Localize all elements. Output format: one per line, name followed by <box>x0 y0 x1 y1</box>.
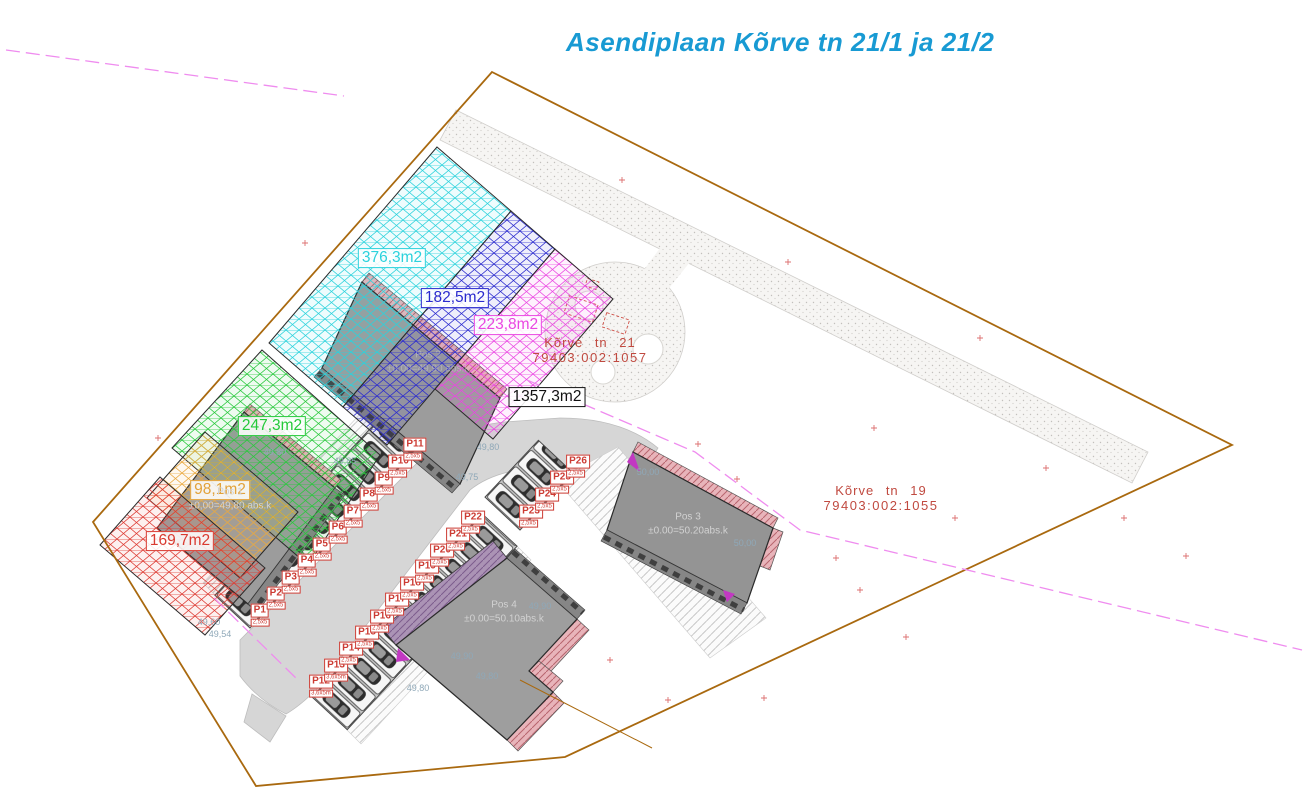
elevation-spot-label: 49,60 <box>198 617 221 627</box>
elevation-spot-label: 49,54 <box>209 629 232 639</box>
elevation-value: 49,60 <box>198 617 221 627</box>
elevation-spot-label: 49,80 <box>476 671 499 681</box>
elevation-spot-label: 49,80 <box>477 442 500 452</box>
parking-stall-dimension: 2,5x5 <box>370 624 389 633</box>
parking-stall-dimension: 2,5x5 <box>344 519 363 528</box>
parking-stall-dimension: 2,5x5 <box>251 618 270 627</box>
area-value: 247,3m2 <box>242 417 302 434</box>
area-value: 182,5m2 <box>425 289 485 306</box>
elevation-spot-label: 49,75 <box>456 472 479 482</box>
elevation-value: 49,85 <box>334 456 357 466</box>
parking-stall-dimension: 2,5x5 <box>388 469 407 478</box>
parking-stall-dimension: 3,6x5m <box>309 689 333 698</box>
elevation-spot-label: 49,90 <box>529 601 552 611</box>
parking-stall-dimension: 2,5x5 <box>282 585 301 594</box>
elevation-value: 50,00 <box>734 538 757 548</box>
elevation-value: 49,80 <box>476 671 499 681</box>
parking-stall-dimension: 2,5x5 <box>329 535 348 544</box>
area-value: 223,8m2 <box>478 316 538 333</box>
building-label: Pos 3 ±0.00=50.20abs.k <box>648 511 728 538</box>
parcel-cadastre-code: 79403:002:1057 <box>533 350 648 365</box>
area-measurement-label: 247,3m2 <box>238 416 306 436</box>
building-label: Pos 1 ±0,00=49,80 abs.k <box>189 486 272 513</box>
area-measurement-label: 169,7m2 <box>146 531 214 551</box>
elevation-value: 49,80 <box>264 447 287 457</box>
parking-stall-number: P22 <box>461 511 485 524</box>
parking-stall-dimension: 2,5x5 <box>403 452 422 461</box>
building-floor-level: ±0.00=50.20abs.k <box>648 524 728 538</box>
building-pos4 <box>382 541 589 751</box>
parking-stall-dimension: 2,5x5 <box>461 525 480 534</box>
site-plan-canvas: Asendiplaan Kõrve tn 21/1 ja 21/2 Kõrve … <box>0 0 1305 800</box>
elevation-spot-label: 50,00 <box>734 538 757 548</box>
elevation-value: 49,80 <box>477 442 500 452</box>
area-value: 376,3m2 <box>362 249 422 266</box>
parking-stall-dimension: 2,5x5 <box>355 640 374 649</box>
parking-stall-dimension: 2,5x5 <box>385 607 404 616</box>
parking-stall-dimension: 3,6x5m <box>324 673 348 682</box>
building-label: Pos 2 ±0,00=49,90 abs.k <box>387 349 470 376</box>
parcel-name: Kõrve tn 21 <box>533 335 648 350</box>
parking-stall-dimension: 2,5x5 <box>267 601 286 610</box>
elevation-value: 49,80 <box>407 683 430 693</box>
parking-stall-dimension: 2,5x5 <box>550 485 569 494</box>
elevation-value: 50,00 <box>637 467 660 477</box>
building-name: Pos 1 <box>189 486 272 500</box>
parcel-cadastre-code: 79403:002:1055 <box>824 498 939 513</box>
area-measurement-label: 1357,3m2 <box>509 387 586 407</box>
parcel-label: Kõrve tn 19 79403:002:1055 <box>824 483 939 513</box>
parking-stall-label: P26 2,5x5 <box>566 455 590 478</box>
parking-stall-dimension: 2,5x5 <box>535 502 554 511</box>
site-plan-drawing <box>0 0 1305 800</box>
parking-stall-label: P22 2,5x5 <box>461 511 485 534</box>
parking-stall-dimension: 2,5x5 <box>339 656 358 665</box>
parking-stall-dimension: 2,5x5 <box>360 502 379 511</box>
elevation-value: 49,75 <box>456 472 479 482</box>
elevation-spot-label: 50,00 <box>637 467 660 477</box>
parking-stall-dimension: 2,5x5 <box>400 591 419 600</box>
building-name: Pos 3 <box>648 511 728 525</box>
parking-stall-dimension: 2,5x5 <box>566 469 585 478</box>
area-measurement-label: 182,5m2 <box>421 288 489 308</box>
parking-stall-dimension: 2,5x5 <box>298 568 317 577</box>
parking-stall-label: P11 2,5x5 <box>403 438 426 461</box>
area-measurement-label: 223,8m2 <box>474 315 542 335</box>
parking-stall-dimension: 2,5x5 <box>519 519 538 528</box>
elevation-value: 49,54 <box>209 629 232 639</box>
elevation-spot-label: 49,90 <box>451 651 474 661</box>
page-title: Asendiplaan Kõrve tn 21/1 ja 21/2 <box>566 27 994 58</box>
parking-stall-dimension: 2,5x5 <box>430 558 449 567</box>
elevation-value: 49,90 <box>451 651 474 661</box>
elevation-spot-label: 49,85 <box>334 456 357 466</box>
area-value: 1357,3m2 <box>513 388 582 405</box>
elevation-spot-label: 49,80 <box>264 447 287 457</box>
parking-stall-dimension: 2,5x5 <box>446 542 465 551</box>
parking-stall-dimension: 2,5x5 <box>415 574 434 583</box>
building-floor-level: ±0,00=49,80 abs.k <box>189 499 272 513</box>
building-floor-level: ±0,00=49,90 abs.k <box>387 362 470 376</box>
area-value: 169,7m2 <box>150 532 210 549</box>
parking-stall-number: P11 <box>403 438 426 452</box>
building-floor-level: ±0.00=50.10abs.k <box>464 612 544 626</box>
elevation-value: 49,90 <box>529 601 552 611</box>
parcel-label: Kõrve tn 21 79403:002:1057 <box>533 335 648 365</box>
parking-stall-dimension: 2,5x5 <box>313 552 332 561</box>
parking-stall-number: P26 <box>566 455 590 469</box>
parking-stall-dimension: 2,5x5 <box>375 486 394 495</box>
parcel-name: Kõrve tn 19 <box>824 483 939 498</box>
area-measurement-label: 376,3m2 <box>358 248 426 268</box>
elevation-spot-label: 49,80 <box>407 683 430 693</box>
building-name: Pos 2 <box>387 349 470 363</box>
